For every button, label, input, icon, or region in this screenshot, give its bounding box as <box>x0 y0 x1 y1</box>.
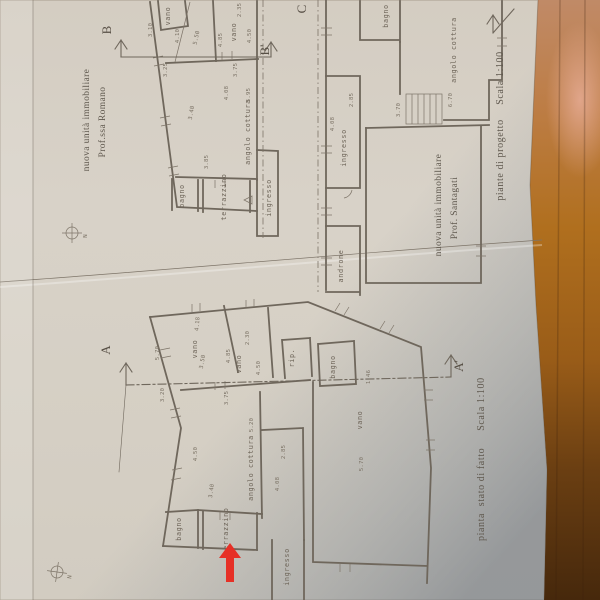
plan-romano-title-line1: nuova unità immobiliare <box>82 69 92 172</box>
dim-label: 1.46 <box>366 370 372 384</box>
room-label-bagno-top: bagno <box>329 355 337 378</box>
dim-label: 2.85 <box>349 93 355 107</box>
dim-label: 3.25 <box>163 63 169 77</box>
room-label-angolo-cottura: angolo cottura <box>450 17 458 83</box>
room-label-ingresso: ingresso <box>340 129 348 167</box>
dim-label: 4.10 <box>175 29 181 43</box>
caption-piante-di-progetto: piante di progetto <box>495 119 506 200</box>
dim-label: 3.75 <box>233 63 239 77</box>
plan-santagati-title-line2: Prof. Santagati <box>449 177 460 239</box>
photo-of-floorplan-sheet: B B' nuova unità immobiliare Prof.ssa Ro… <box>0 0 600 600</box>
caption-pianta: pianta <box>476 513 487 541</box>
dim-label: 3.70 <box>396 103 402 117</box>
dim-label: 4.50 <box>247 29 253 43</box>
room-label-angolo-cottura: angolo cottura <box>244 99 252 165</box>
dim-label: 6.70 <box>448 93 454 107</box>
section-label-a-prime: A' <box>451 360 466 372</box>
room-label-bagno: bagno <box>175 517 183 540</box>
room-label-vano-right: vano <box>230 23 238 42</box>
dim-label: 2.30 <box>245 331 251 345</box>
room-label-vano-a: vano <box>191 340 199 359</box>
left-fold-strip <box>0 0 33 600</box>
section-label-b: B <box>99 25 114 34</box>
dim-label: 5.95 <box>246 88 252 102</box>
room-label-angolo-cottura: angolo cottura <box>247 435 255 501</box>
dim-label: 4.08 <box>330 116 336 131</box>
dim-label: 4.85 <box>226 349 232 363</box>
section-label-a: A <box>98 345 113 355</box>
scale-label-stato: Scala 1:100 <box>476 377 487 431</box>
room-label-bagno: bagno <box>382 4 390 27</box>
room-label-vano-c: vano <box>356 411 364 430</box>
room-label-androne: androne <box>337 250 345 283</box>
room-label-bagno: bagno <box>178 184 186 207</box>
north-label: N <box>83 234 89 238</box>
section-label-b-prime: B' <box>257 44 272 55</box>
dim-label: 4.08 <box>224 85 230 100</box>
dim-label: 2.35 <box>237 3 243 17</box>
room-label-rip: rip. <box>288 349 296 368</box>
dim-label: 4.85 <box>218 33 224 47</box>
room-label-ingresso: ingresso <box>283 548 291 586</box>
plan-romano-title-line2: Prof.ssa Romano <box>97 87 108 158</box>
scene: B B' nuova unità immobiliare Prof.ssa Ro… <box>0 0 600 600</box>
room-label-vano-top: vano <box>164 7 172 26</box>
dim-label: 5.70 <box>359 457 365 471</box>
room-label-terrazzino: terrazzino <box>220 174 228 221</box>
section-label-c: C <box>294 5 309 14</box>
room-label-vano-b: vano <box>235 355 243 374</box>
dim-label: 3.20 <box>160 388 166 402</box>
dim-label: 4.50 <box>193 447 199 461</box>
dim-label: 4.08 <box>275 476 281 491</box>
caption-stato-di-fatto: stato di fatto <box>476 448 487 506</box>
dim-label: 5.20 <box>249 418 255 432</box>
dim-label: 3.75 <box>224 391 230 405</box>
dim-label: 5.70 <box>155 346 161 360</box>
dim-label: 4.50 <box>256 361 262 375</box>
dim-label: 2.85 <box>281 445 287 459</box>
plan-santagati-title-line1: nuova unità immobiliare <box>434 154 444 257</box>
dim-label: 3.10 <box>148 23 154 37</box>
dim-label: 3.85 <box>204 155 210 169</box>
dim-label: 4.18 <box>194 316 201 331</box>
room-label-ingresso: ingresso <box>265 179 273 217</box>
scale-label-progetto: Scala 1:100 <box>495 51 506 105</box>
